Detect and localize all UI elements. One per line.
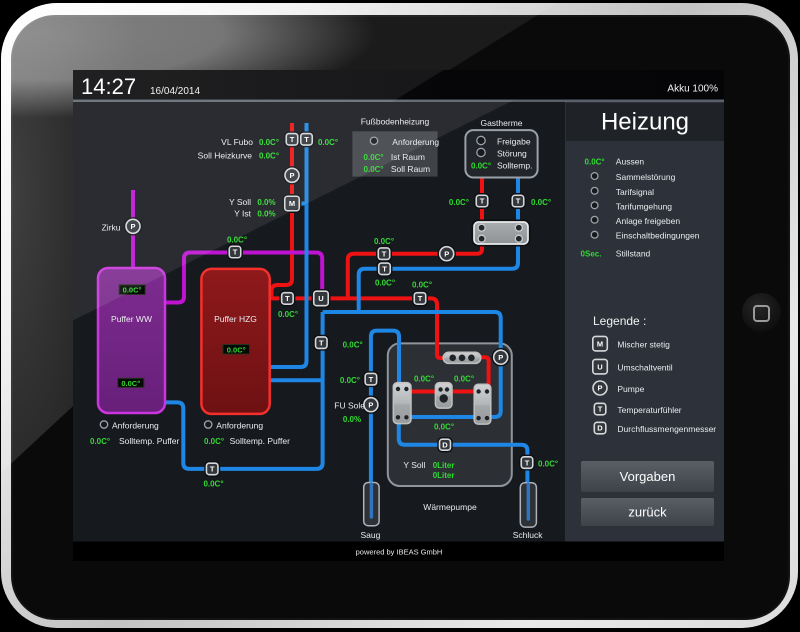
- svg-text:Durchflussmengenmesser: Durchflussmengenmesser: [617, 424, 716, 434]
- svg-text:0.0C°: 0.0C°: [227, 345, 246, 354]
- svg-text:Schluck: Schluck: [513, 530, 544, 540]
- svg-text:Freigabe: Freigabe: [497, 137, 531, 147]
- svg-text:Gastherme: Gastherme: [480, 118, 522, 128]
- svg-text:T: T: [598, 405, 603, 414]
- svg-text:0.0C°: 0.0C°: [471, 162, 491, 171]
- svg-text:Umschaltventil: Umschaltventil: [617, 363, 672, 373]
- svg-text:Solltemp. Puffer: Solltemp. Puffer: [119, 436, 179, 446]
- svg-text:P: P: [444, 249, 449, 258]
- svg-text:0.0C°: 0.0C°: [585, 158, 605, 167]
- svg-text:T: T: [382, 249, 387, 258]
- svg-text:Heizung: Heizung: [601, 109, 689, 136]
- svg-text:0.0%: 0.0%: [343, 415, 361, 424]
- svg-text:0.0C°: 0.0C°: [412, 281, 432, 290]
- svg-text:0.0C°: 0.0C°: [90, 437, 110, 446]
- svg-text:T: T: [210, 465, 215, 474]
- svg-text:Störung: Störung: [497, 149, 527, 159]
- svg-text:D: D: [597, 424, 603, 433]
- svg-text:0.0C°: 0.0C°: [374, 237, 394, 246]
- svg-text:Anlage freigeben: Anlage freigeben: [616, 216, 681, 226]
- svg-text:Aussen: Aussen: [616, 157, 645, 167]
- svg-text:Pumpe: Pumpe: [617, 384, 644, 394]
- svg-text:P: P: [368, 400, 373, 409]
- svg-text:0.0C°: 0.0C°: [434, 423, 454, 432]
- svg-text:FU Sole: FU Sole: [334, 401, 365, 411]
- svg-text:0Sec.: 0Sec.: [581, 250, 602, 259]
- svg-text:T: T: [233, 248, 238, 257]
- svg-text:P: P: [498, 353, 503, 362]
- svg-text:Legende :: Legende :: [593, 314, 646, 328]
- svg-text:U: U: [318, 294, 323, 303]
- svg-text:Puffer WW: Puffer WW: [111, 314, 152, 324]
- svg-text:Tarifumgehung: Tarifumgehung: [616, 201, 673, 211]
- svg-text:0.0C°: 0.0C°: [454, 375, 474, 384]
- svg-text:0.0C°: 0.0C°: [203, 480, 223, 489]
- svg-text:0.0C°: 0.0C°: [204, 437, 224, 446]
- svg-text:Tarifsignal: Tarifsignal: [616, 187, 654, 197]
- svg-text:0.0C°: 0.0C°: [375, 279, 395, 288]
- svg-text:0.0C°: 0.0C°: [278, 310, 298, 319]
- svg-text:T: T: [516, 197, 521, 206]
- svg-text:Akku 100%: Akku 100%: [667, 84, 718, 95]
- svg-text:Soll Raum: Soll Raum: [391, 164, 430, 174]
- svg-text:P: P: [597, 384, 602, 393]
- svg-text:0Liter: 0Liter: [433, 461, 455, 470]
- svg-text:zurück: zurück: [628, 505, 667, 520]
- svg-text:Sammelstörung: Sammelstörung: [616, 172, 676, 182]
- svg-text:T: T: [525, 458, 530, 467]
- svg-text:T: T: [418, 294, 423, 303]
- svg-text:0.0C°: 0.0C°: [343, 340, 363, 349]
- svg-text:Y Soll: Y Soll: [403, 460, 425, 470]
- svg-text:Vorgaben: Vorgaben: [620, 469, 676, 484]
- svg-text:Mischer stetig: Mischer stetig: [617, 340, 670, 350]
- svg-text:0.0C°: 0.0C°: [340, 376, 360, 385]
- svg-text:0.0C°: 0.0C°: [538, 460, 558, 469]
- svg-text:Temperaturfühler: Temperaturfühler: [617, 405, 681, 415]
- svg-text:U: U: [597, 363, 602, 372]
- svg-text:0Liter: 0Liter: [433, 471, 455, 480]
- svg-text:Solltemp. Puffer: Solltemp. Puffer: [230, 436, 290, 446]
- svg-text:T: T: [285, 294, 290, 303]
- svg-text:0.0C°: 0.0C°: [121, 379, 140, 388]
- svg-text:0.0C°: 0.0C°: [449, 198, 469, 207]
- svg-text:D: D: [442, 440, 448, 449]
- svg-text:T: T: [382, 265, 387, 274]
- svg-text:0.0C°: 0.0C°: [414, 375, 434, 384]
- svg-text:Wärmepumpe: Wärmepumpe: [423, 502, 477, 512]
- svg-text:T: T: [480, 197, 485, 206]
- svg-text:Stillstand: Stillstand: [616, 249, 651, 259]
- svg-text:Puffer HZG: Puffer HZG: [214, 314, 257, 324]
- svg-text:T: T: [319, 338, 324, 347]
- svg-text:Solltemp.: Solltemp.: [497, 161, 532, 171]
- svg-text:Einschaltbedingungen: Einschaltbedingungen: [616, 231, 700, 241]
- svg-text:M: M: [597, 340, 603, 349]
- svg-text:0.0C°: 0.0C°: [531, 198, 551, 207]
- svg-text:Anforderung: Anforderung: [112, 421, 159, 431]
- svg-text:Anforderung: Anforderung: [216, 421, 263, 431]
- svg-text:powered by IBEAS GmbH: powered by IBEAS GmbH: [356, 548, 443, 557]
- svg-text:T: T: [369, 375, 374, 384]
- svg-text:Saug: Saug: [360, 530, 380, 540]
